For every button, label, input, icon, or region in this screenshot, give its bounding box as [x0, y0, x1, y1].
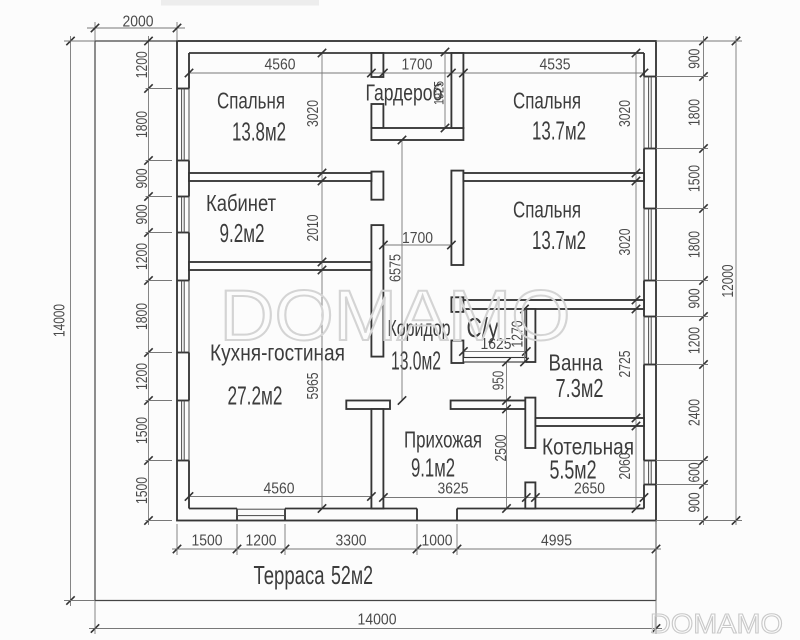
svg-text:Терраса: Терраса	[254, 560, 325, 590]
svg-text:2400: 2400	[686, 399, 703, 426]
svg-text:900: 900	[134, 204, 151, 224]
svg-text:Кабинет: Кабинет	[206, 190, 276, 216]
svg-text:3020: 3020	[305, 100, 322, 127]
svg-text:900: 900	[686, 492, 703, 512]
svg-text:1200: 1200	[134, 243, 151, 270]
svg-text:600: 600	[686, 462, 703, 482]
svg-text:DOMAMO: DOMAMO	[220, 277, 571, 356]
svg-text:1925: 1925	[431, 81, 447, 105]
svg-text:4560: 4560	[264, 480, 295, 497]
svg-text:1500: 1500	[192, 532, 223, 549]
svg-text:3625: 3625	[438, 480, 469, 497]
svg-text:1800: 1800	[686, 231, 703, 258]
svg-text:1500: 1500	[134, 477, 151, 504]
svg-text:9.2м2: 9.2м2	[220, 218, 265, 248]
svg-text:DOMAMO: DOMAMO	[650, 608, 783, 639]
svg-text:Спальня: Спальня	[513, 196, 581, 222]
svg-text:1200: 1200	[246, 532, 277, 549]
svg-text:1800: 1800	[134, 111, 151, 138]
svg-text:7.3м2: 7.3м2	[556, 373, 604, 403]
svg-text:52м2: 52м2	[331, 560, 373, 590]
svg-text:3020: 3020	[617, 228, 634, 255]
svg-text:12000: 12000	[720, 264, 737, 297]
svg-text:1800: 1800	[134, 303, 151, 330]
svg-text:13.7м2: 13.7м2	[532, 115, 586, 145]
svg-text:4560: 4560	[265, 56, 296, 73]
svg-text:Прихожая: Прихожая	[404, 426, 482, 452]
svg-text:4535: 4535	[540, 56, 571, 73]
svg-text:900: 900	[686, 288, 703, 308]
svg-text:1200: 1200	[134, 51, 151, 78]
svg-text:14000: 14000	[358, 611, 397, 628]
svg-text:13.8м2: 13.8м2	[232, 116, 286, 146]
svg-text:2060: 2060	[617, 452, 634, 479]
svg-text:1000: 1000	[422, 532, 453, 549]
svg-text:900: 900	[686, 49, 703, 69]
svg-text:2010: 2010	[305, 214, 322, 241]
svg-text:Спальня: Спальня	[217, 87, 285, 113]
svg-text:3300: 3300	[336, 532, 367, 549]
svg-text:27.2м2: 27.2м2	[228, 380, 283, 410]
svg-text:1200: 1200	[686, 327, 703, 354]
svg-text:1700: 1700	[402, 56, 433, 73]
svg-text:4995: 4995	[541, 532, 572, 549]
svg-text:2725: 2725	[617, 350, 634, 377]
svg-text:9.1м2: 9.1м2	[411, 452, 455, 482]
svg-text:14000: 14000	[51, 304, 68, 337]
svg-text:1800: 1800	[686, 99, 703, 126]
svg-text:1200: 1200	[134, 363, 151, 390]
svg-text:5965: 5965	[305, 372, 322, 399]
svg-text:950: 950	[490, 371, 507, 391]
svg-text:3020: 3020	[617, 100, 634, 127]
svg-text:13.7м2: 13.7м2	[532, 225, 586, 255]
svg-text:1700: 1700	[402, 230, 433, 247]
svg-text:2650: 2650	[574, 480, 605, 497]
svg-text:1500: 1500	[686, 165, 703, 192]
svg-text:900: 900	[134, 168, 151, 188]
svg-text:1500: 1500	[134, 417, 151, 444]
svg-text:Спальня: Спальня	[513, 87, 581, 113]
svg-text:2500: 2500	[493, 434, 510, 461]
svg-text:2000: 2000	[123, 13, 154, 30]
